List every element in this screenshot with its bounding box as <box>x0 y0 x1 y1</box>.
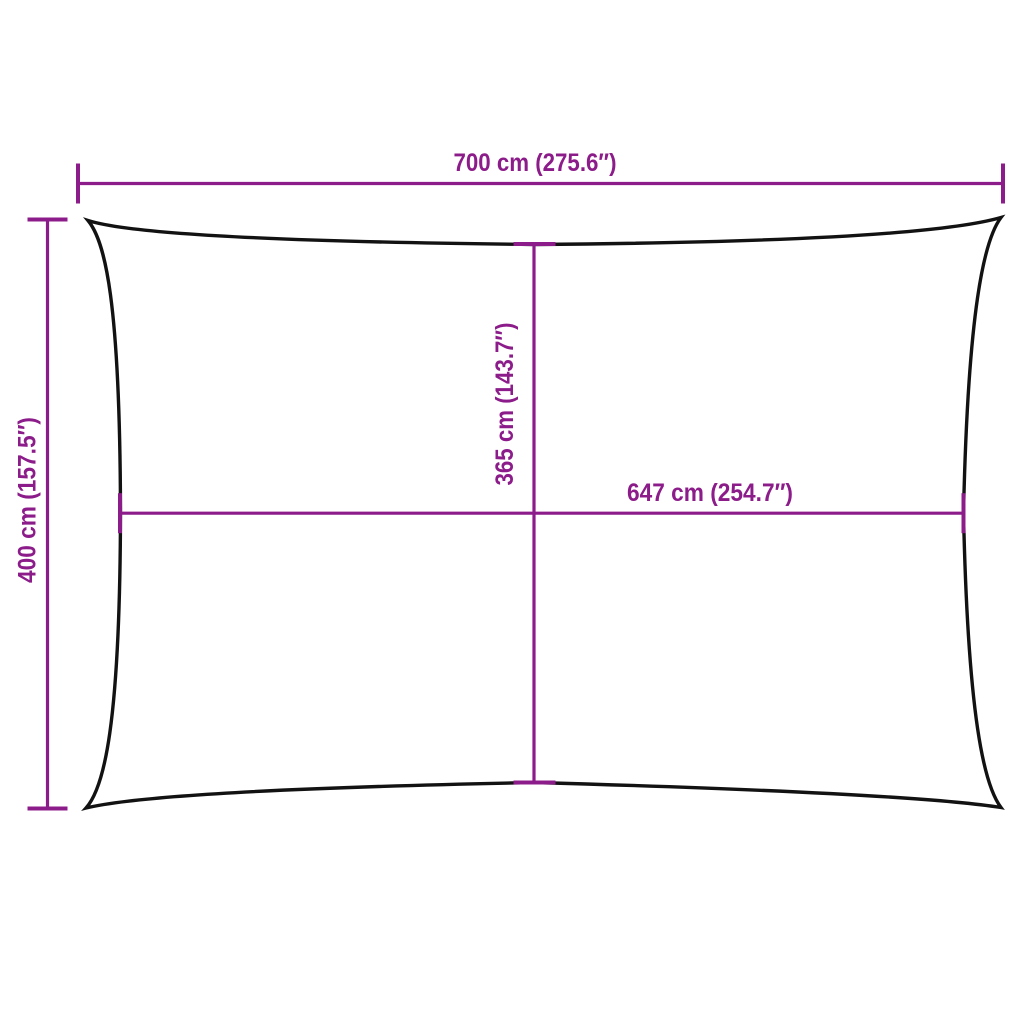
svg-text:647 cm (254.7″): 647 cm (254.7″) <box>627 479 793 507</box>
svg-text:700 cm (275.6″): 700 cm (275.6″) <box>454 149 617 177</box>
svg-text:365 cm (143.7″): 365 cm (143.7″) <box>491 323 519 486</box>
svg-text:400 cm (157.5″): 400 cm (157.5″) <box>14 417 42 583</box>
